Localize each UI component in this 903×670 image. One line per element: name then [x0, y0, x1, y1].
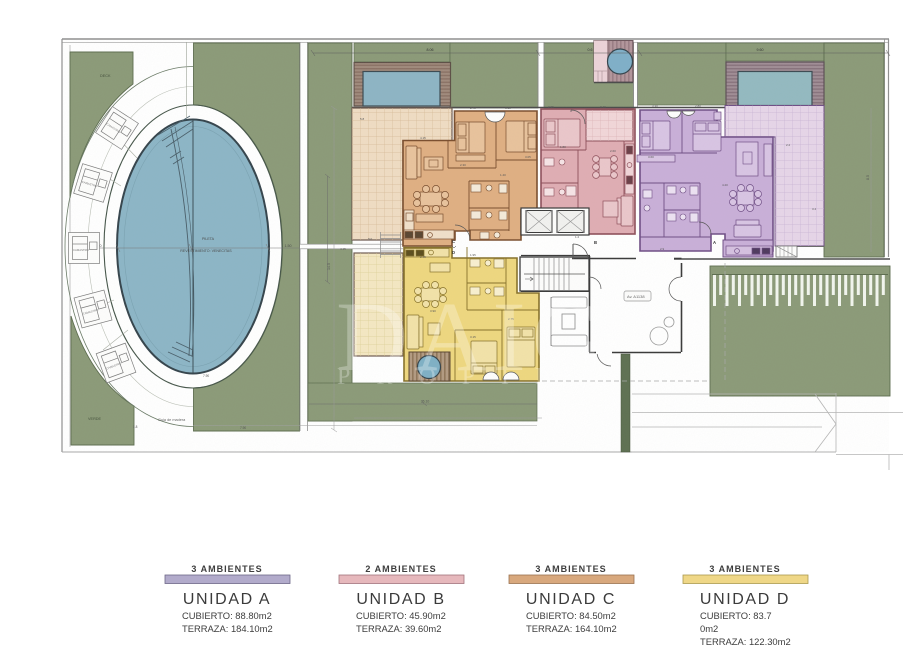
svg-text:CUBIERTO: 45.90m2: CUBIERTO: 45.90m2 [356, 610, 446, 621]
svg-text:3.05: 3.05 [525, 155, 531, 159]
svg-text:2.80: 2.80 [695, 104, 701, 108]
svg-text:2.60: 2.60 [610, 149, 616, 153]
svg-text:4.15: 4.15 [340, 247, 346, 251]
svg-text:2.70: 2.70 [470, 106, 476, 110]
svg-text:4.20: 4.20 [722, 183, 728, 187]
svg-text:3.10: 3.10 [505, 106, 511, 110]
svg-text:B: B [594, 240, 597, 245]
svg-text:1.95: 1.95 [470, 253, 476, 257]
svg-text:2.45: 2.45 [420, 255, 426, 259]
svg-text:3 AMBIENTES: 3 AMBIENTES [191, 564, 262, 574]
svg-text:3.4: 3.4 [812, 207, 817, 211]
svg-text:CUBIERTO: 83.7: CUBIERTO: 83.7 [700, 610, 772, 621]
svg-text:1.40: 1.40 [500, 173, 506, 177]
svg-text:1.2: 1.2 [575, 235, 580, 239]
svg-text:TERRAZA: 122.30m2: TERRAZA: 122.30m2 [700, 636, 791, 647]
svg-text:TERRAZA: 39.60m2: TERRAZA: 39.60m2 [356, 623, 441, 634]
svg-text:3 AMBIENTES: 3 AMBIENTES [535, 564, 606, 574]
svg-text:2.2: 2.2 [786, 143, 791, 147]
svg-text:UNIDAD D: UNIDAD D [700, 591, 790, 608]
svg-text:2.30: 2.30 [460, 163, 466, 167]
svg-text:UNIDAD B: UNIDAD B [356, 591, 445, 608]
svg-text:TERRAZA: 164.10m2: TERRAZA: 164.10m2 [526, 623, 617, 634]
svg-text:8.0: 8.0 [368, 237, 373, 241]
svg-text:4.15: 4.15 [420, 136, 426, 140]
svg-text:CUBIERTO: 88.80m2: CUBIERTO: 88.80m2 [182, 610, 272, 621]
svg-text:1.80: 1.80 [560, 145, 566, 149]
svg-text:2.95: 2.95 [548, 105, 554, 109]
svg-text:UNIDAD C: UNIDAD C [526, 591, 616, 608]
svg-text:CUBIERTO: 84.50m2: CUBIERTO: 84.50m2 [526, 610, 616, 621]
svg-text:0m2: 0m2 [700, 623, 718, 634]
svg-text:3 AMBIENTES: 3 AMBIENTES [709, 564, 780, 574]
svg-text:3.40: 3.40 [600, 105, 606, 109]
svg-text:3.60: 3.60 [648, 155, 654, 159]
svg-text:UNIDAD A: UNIDAD A [183, 591, 271, 608]
svg-text:TERRAZA: 184.10m2: TERRAZA: 184.10m2 [182, 623, 273, 634]
svg-text:A: A [713, 240, 716, 245]
svg-text:3.30: 3.30 [652, 104, 658, 108]
svg-text:5.8: 5.8 [360, 117, 365, 121]
svg-text:2.9: 2.9 [660, 247, 665, 251]
svg-text:2 AMBIENTES: 2 AMBIENTES [365, 564, 436, 574]
